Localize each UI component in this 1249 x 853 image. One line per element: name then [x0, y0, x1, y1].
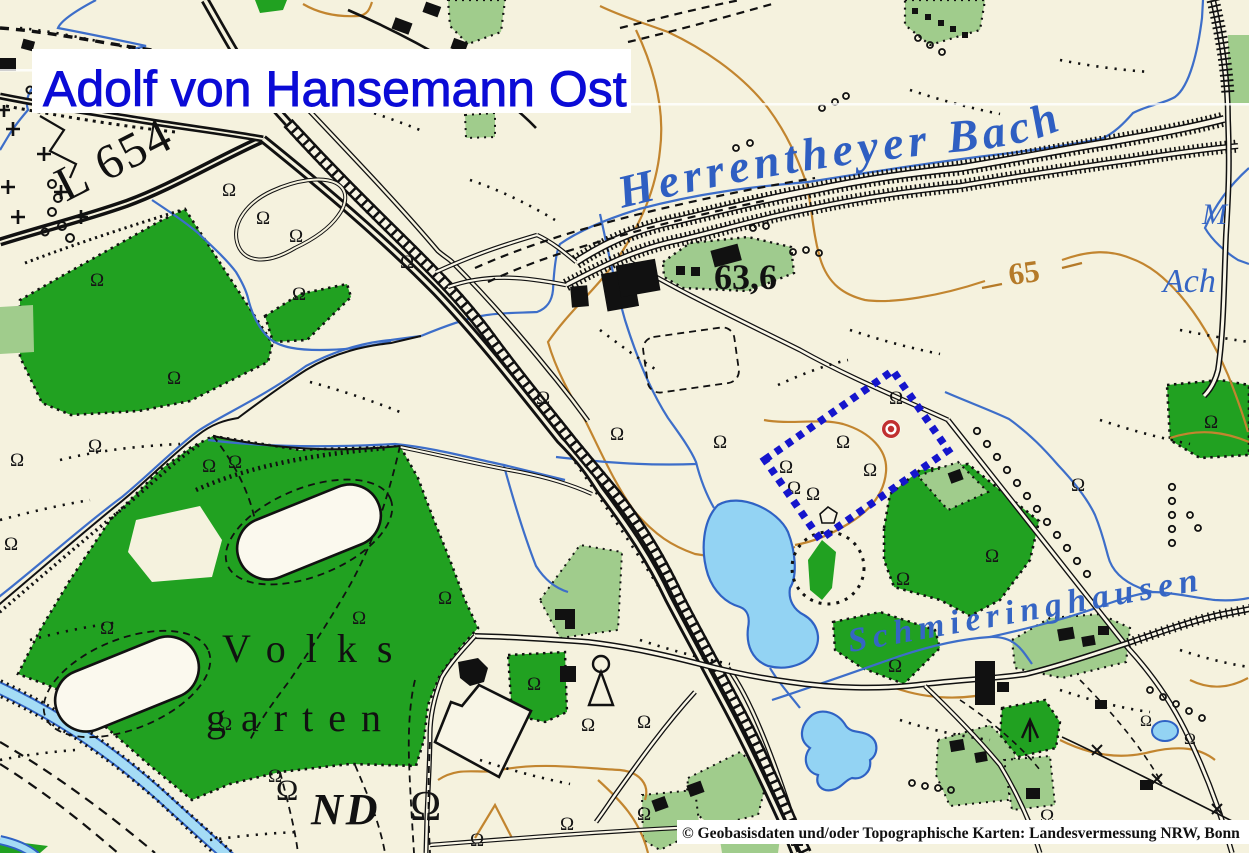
svg-text:Ω: Ω — [88, 436, 102, 457]
svg-text:Adolf von Hansemann Ost: Adolf von Hansemann Ost — [43, 61, 627, 117]
svg-text:Ω: Ω — [1140, 713, 1152, 730]
svg-text:Ω: Ω — [1184, 731, 1196, 748]
svg-text:Ω: Ω — [1071, 475, 1085, 496]
svg-text:Ω: Ω — [90, 270, 104, 291]
svg-text:Ω: Ω — [4, 534, 18, 555]
svg-text:Ω: Ω — [713, 432, 727, 453]
svg-text:Ω: Ω — [167, 368, 181, 389]
svg-text:Ω: Ω — [637, 712, 651, 733]
svg-text:ND: ND — [310, 785, 381, 834]
svg-text:Ω: Ω — [889, 388, 903, 409]
svg-text:Ω: Ω — [1204, 412, 1218, 433]
svg-text:Ω: Ω — [896, 569, 910, 590]
svg-text:Ω: Ω — [289, 226, 303, 247]
svg-text:Ω: Ω — [256, 208, 270, 229]
svg-text:Ω: Ω — [276, 774, 298, 807]
svg-text:Ω: Ω — [410, 784, 441, 830]
svg-text:Ω: Ω — [292, 284, 306, 305]
svg-text:M: M — [1201, 198, 1229, 231]
svg-text:Ach: Ach — [1161, 263, 1216, 300]
svg-text:Ω: Ω — [536, 388, 550, 409]
svg-text:garten: garten — [206, 695, 396, 740]
svg-text:Volks: Volks — [222, 626, 412, 671]
svg-text:Ω: Ω — [610, 424, 624, 445]
svg-text:Ω: Ω — [527, 674, 541, 695]
svg-text:Ω: Ω — [400, 252, 414, 273]
svg-text:Ω: Ω — [10, 450, 24, 471]
svg-text:Ω: Ω — [863, 460, 877, 481]
svg-text:Ω: Ω — [888, 656, 902, 677]
svg-text:Ω: Ω — [581, 715, 595, 736]
svg-text:Ω: Ω — [637, 804, 651, 825]
svg-text:63,6: 63,6 — [714, 257, 777, 297]
svg-text:Ω: Ω — [438, 588, 452, 609]
svg-text:Ω: Ω — [985, 546, 999, 567]
svg-text:Ω: Ω — [806, 484, 820, 505]
svg-text:Ω: Ω — [222, 180, 236, 201]
svg-text:Ω: Ω — [228, 452, 242, 473]
svg-text:65: 65 — [1006, 253, 1042, 292]
svg-text:Ω: Ω — [100, 618, 114, 639]
svg-text:© Geobasisdaten und/oder Topog: © Geobasisdaten und/oder Topographische … — [682, 825, 1240, 842]
svg-text:Ω: Ω — [779, 457, 793, 478]
svg-text:Ω: Ω — [470, 830, 484, 851]
svg-text:Ω: Ω — [202, 456, 216, 477]
svg-text:Ω: Ω — [560, 814, 574, 835]
svg-text:Ω: Ω — [836, 432, 850, 453]
